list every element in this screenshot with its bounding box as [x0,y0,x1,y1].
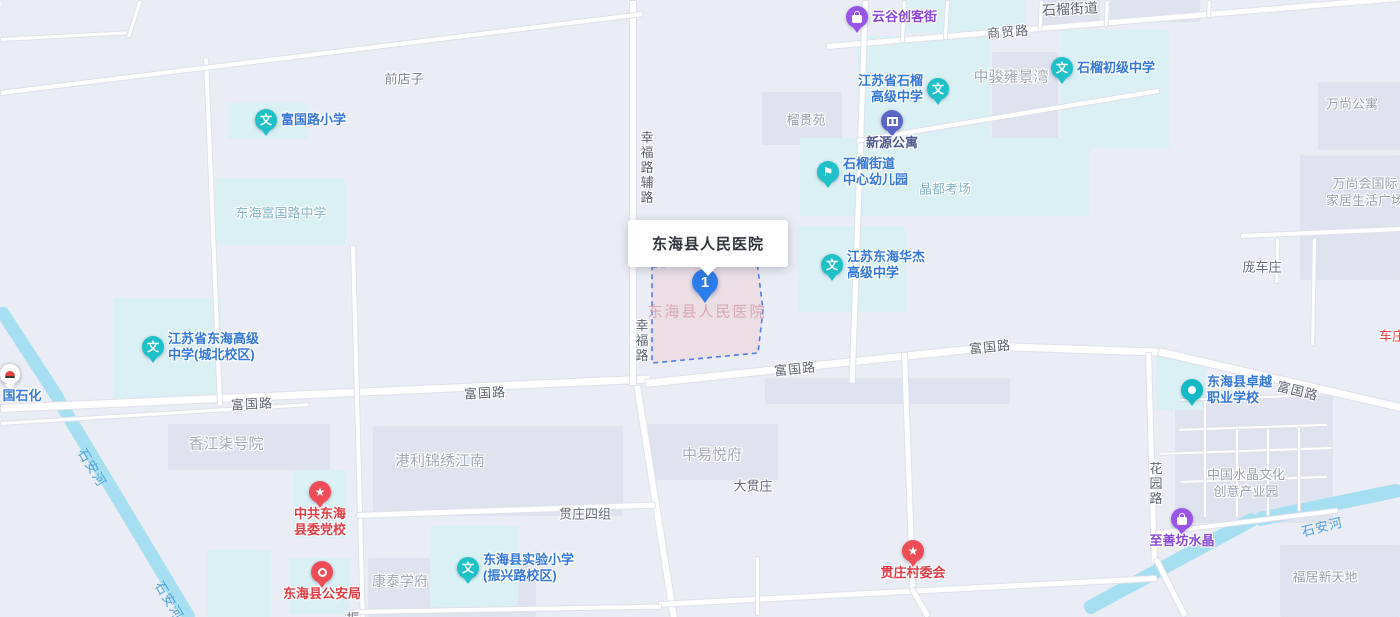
poi-label[interactable]: 富国路小学 [281,112,346,128]
place-label: 晶都考场 [919,182,971,199]
road-label: 富国路 [464,381,507,402]
poi-label[interactable]: 贯庄村委会 [880,565,945,581]
place-label: 康泰学府 [372,572,428,590]
building-pin-icon[interactable] [881,110,903,132]
hospital-infobox[interactable]: 东海县人民医院 [628,220,788,267]
place-label: 万尚会国际家居生活广场 [1326,176,1400,210]
school-pin-icon[interactable]: 文 [1051,57,1073,79]
place-label: 村 [0,0,1,16]
marker-number: 1 [701,274,709,291]
place-label: 香江柒号院 [188,434,263,454]
place-label: 中国水晶文化创意产业园 [1207,467,1285,501]
party-pin-icon[interactable]: ★ [309,481,331,503]
place-label: 榴贵苑 [786,113,825,130]
poi-label[interactable]: 石榴街道中心幼儿园 [843,156,908,189]
place-label: 中骏雍景湾 [973,67,1048,87]
kindergarten-pin-icon[interactable]: ⚑ [817,161,839,183]
poi-label[interactable]: 新源公寓 [866,135,918,151]
road-label: 富国路 [773,356,817,379]
police-pin-icon[interactable] [311,561,333,583]
poi-label[interactable]: 东海县卓越职业学校 [1207,374,1272,407]
place-label: 大贯庄 [733,479,772,496]
map-area-block [1318,82,1400,150]
road-label: 振兴路 [343,612,362,617]
school-pin-icon[interactable]: 文 [927,78,949,100]
road-label: 富国路 [231,392,274,413]
road [350,245,366,617]
poi-label[interactable]: 江苏东海华杰高级中学 [847,249,925,282]
poi-label[interactable]: 东海县实验小学(振兴路校区) [483,552,574,585]
road-label: 商贸路 [986,20,1030,43]
road [0,374,652,413]
poi-label[interactable]: 江苏省石榴高级中学 [858,73,923,106]
road [755,556,760,616]
place-label: 中易悦府 [682,445,742,465]
road [0,30,128,42]
school-pin-icon[interactable]: 文 [142,336,164,358]
road [0,11,644,96]
map-area-block [373,426,623,516]
road [126,0,143,39]
poi-label[interactable]: 至善坊水晶 [1149,533,1214,549]
infobox-title: 东海县人民医院 [652,233,764,254]
road [633,384,678,617]
place-label: 福居新天地 [1292,570,1357,587]
highlighted-area-label: 东海县人民医院 [647,301,766,322]
vocational-pin-icon[interactable] [1181,379,1203,401]
place-label: 万尚公寓 [1326,97,1378,114]
school-pin-icon[interactable]: 文 [255,109,277,131]
poi-label[interactable]: 石榴初级中学 [1077,60,1155,76]
poi-label[interactable]: 云谷创客街 [872,9,937,25]
poi-label[interactable]: 中共东海县委党校 [294,506,346,539]
place-label: 贯庄四组 [559,507,611,524]
shop-pin-icon[interactable] [1171,508,1193,530]
road-label: 幸福路辅路 [637,131,656,206]
road-label: 花园路 [1146,462,1165,507]
committee-pin-icon[interactable]: ★ [902,540,924,562]
place-label: 港利锦绣江南 [395,451,485,471]
road-label: 富国路 [968,334,1012,357]
gas-pin-icon[interactable] [0,363,21,385]
road-label: 幸福路 [632,319,651,364]
school-pin-icon[interactable]: 文 [457,557,479,579]
place-label: 东海富国路中学 [235,206,326,223]
river [1082,511,1260,616]
map-canvas[interactable]: 村前店子东海富国路中学榴贵苑中骏雍景湾石榴街道万尚公寓万尚会国际家居生活广场晶都… [0,0,1400,617]
shop-pin-icon[interactable] [846,6,868,28]
poi-label[interactable]: 东海县公安局 [283,586,361,602]
road [1310,238,1317,346]
poi-label[interactable]: 国石化 [2,388,41,404]
school-pin-icon[interactable]: 文 [821,254,843,276]
place-label: 庞车庄 [1242,260,1281,277]
place-label: 车庄 [1379,329,1400,346]
place-label: 石榴街道 [1042,0,1099,20]
poi-label[interactable]: 江苏省东海高级中学(城北校区) [168,331,259,364]
road [1297,426,1301,512]
map-area-school-grounds [207,550,271,617]
road [1206,0,1212,18]
road [998,342,1166,357]
map-area-block [765,378,1010,404]
place-label: 前店子 [384,72,423,89]
